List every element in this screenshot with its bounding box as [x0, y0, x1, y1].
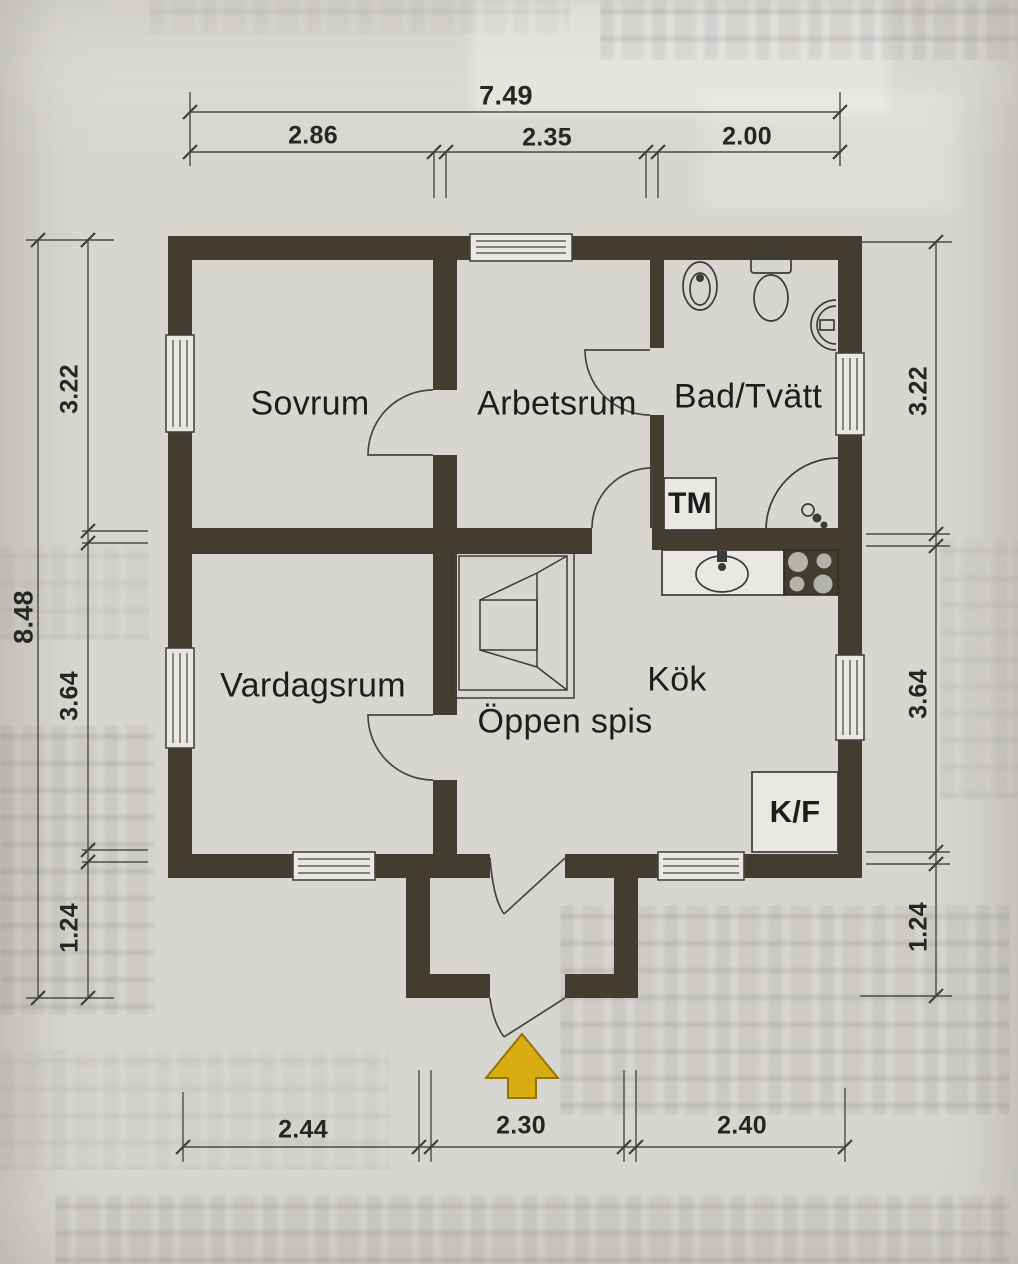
entrance-arrow-icon — [486, 1034, 558, 1098]
dimension-lines-left — [26, 233, 148, 1005]
scanned-floorplan-page: Sovrum Arbetsrum Bad/Tvätt Vardagsrum Kö… — [0, 0, 1018, 1264]
dim-top-seg2: 2.35 — [522, 124, 572, 153]
dimension-lines-right — [860, 235, 952, 1003]
double-door-icon — [490, 858, 565, 914]
room-label-kok: Kök — [647, 661, 707, 700]
room-label-sovrum: Sovrum — [251, 385, 370, 424]
window-icon — [836, 353, 864, 435]
window-icon — [836, 655, 864, 740]
toilet-icon — [751, 252, 791, 321]
dim-left-seg3: 1.24 — [56, 903, 85, 953]
window-icon — [658, 852, 744, 880]
door-swing-icon — [368, 390, 433, 455]
label-washing-machine: TM — [668, 487, 712, 521]
window-icon — [166, 335, 194, 432]
kitchen-sink-icon — [662, 550, 784, 595]
dim-top-total: 7.49 — [479, 81, 533, 112]
window-icon — [293, 852, 375, 880]
label-oppen-spis: Öppen spis — [478, 703, 653, 742]
window-icon — [166, 648, 194, 748]
dim-left-seg2: 3.64 — [56, 671, 85, 721]
room-label-vardagsrum: Vardagsrum — [220, 667, 406, 706]
washbasin-icon — [811, 300, 836, 350]
stove-icon — [784, 550, 838, 595]
dim-right-seg3: 1.24 — [905, 902, 934, 952]
door-swing-icon — [592, 468, 652, 528]
dim-left-seg1: 3.22 — [56, 364, 85, 414]
walls — [168, 236, 862, 998]
dim-bottom-seg2: 2.30 — [496, 1112, 546, 1141]
room-label-arbetsrum: Arbetsrum — [477, 385, 637, 424]
label-fridge-freezer: K/F — [770, 794, 821, 830]
dim-bottom-seg3: 2.40 — [717, 1112, 767, 1141]
floorplan-drawing — [0, 0, 1018, 1264]
dim-right-seg2: 3.64 — [905, 669, 934, 719]
shower-icon — [766, 458, 838, 530]
room-label-bad-tvatt: Bad/Tvätt — [674, 378, 822, 417]
fireplace-icon — [452, 548, 574, 698]
dim-bottom-seg1: 2.44 — [278, 1116, 328, 1145]
dim-left-total: 8.48 — [9, 590, 40, 644]
bidet-icon — [683, 262, 717, 310]
dim-top-seg3: 2.00 — [722, 123, 772, 152]
door-swing-icon — [368, 715, 433, 780]
entrance-door-icon — [490, 998, 565, 1037]
window-icon — [470, 234, 572, 261]
dim-top-seg1: 2.86 — [288, 122, 338, 151]
dim-right-seg1: 3.22 — [905, 366, 934, 416]
